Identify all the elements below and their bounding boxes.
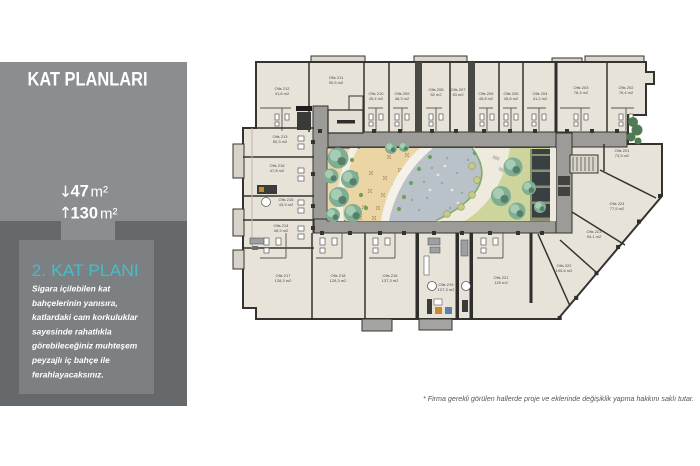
svg-text:52 m2: 52 m2 — [430, 92, 442, 97]
svg-text:m²: m² — [100, 206, 118, 223]
svg-text:76,4 m2: 76,4 m2 — [574, 90, 589, 95]
svg-text:128,3 m2: 128,3 m2 — [275, 278, 292, 283]
svg-text:45,8 m2: 45,8 m2 — [504, 96, 519, 101]
svg-text:45,9 m2: 45,9 m2 — [274, 228, 289, 233]
svg-text:77,5 m2: 77,5 m2 — [610, 206, 625, 211]
svg-text:Sigara içilebilen kat: Sigara içilebilen kat — [32, 284, 111, 294]
svg-text:43,9 m2: 43,9 m2 — [279, 202, 294, 207]
svg-text:45,8 m2: 45,8 m2 — [479, 96, 494, 101]
svg-text:47: 47 — [71, 183, 89, 201]
svg-text:45,4 m2: 45,4 m2 — [369, 96, 384, 101]
svg-text:73,9 m2: 73,9 m2 — [615, 153, 630, 158]
svg-text:47,8 m2: 47,8 m2 — [270, 168, 285, 173]
svg-text:130: 130 — [71, 205, 99, 223]
svg-text:m²: m² — [91, 184, 109, 201]
svg-text:41,8 m2: 41,8 m2 — [275, 91, 290, 96]
svg-text:KAT PLANLARI: KAT PLANLARI — [28, 70, 148, 91]
svg-text:105,6 m2: 105,6 m2 — [556, 268, 573, 273]
svg-text:2. KAT PLANI: 2. KAT PLANI — [32, 262, 139, 280]
svg-text:katlardaki cam korkuluklar: katlardaki cam korkuluklar — [32, 312, 138, 322]
svg-text:128,3 m2: 128,3 m2 — [330, 278, 347, 283]
svg-text:peyzajlı iç bahçe ile: peyzajlı iç bahçe ile — [31, 355, 110, 365]
svg-text:41,2 m2: 41,2 m2 — [533, 96, 548, 101]
svg-text:94,1 m2: 94,1 m2 — [587, 234, 602, 239]
svg-text:50,3 m2: 50,3 m2 — [273, 139, 288, 144]
svg-text:ferahlayacaksınız.: ferahlayacaksınız. — [32, 369, 104, 379]
svg-text:120 m2: 120 m2 — [494, 280, 508, 285]
svg-text:bahçelerinin yanısıra,: bahçelerinin yanısıra, — [32, 298, 118, 308]
svg-text:127,3 m2: 127,3 m2 — [438, 287, 455, 292]
svg-text:görebileceğiniz muhteşem: görebileceğiniz muhteşem — [31, 341, 138, 351]
svg-text:* Firma gerekli görülen haller: * Firma gerekli görülen hallerde proje v… — [423, 394, 694, 403]
svg-text:137,3 m2: 137,3 m2 — [382, 278, 399, 283]
svg-text:76,4 m2: 76,4 m2 — [619, 90, 634, 95]
svg-text:53 m2: 53 m2 — [452, 92, 464, 97]
svg-text:90,5 m2: 90,5 m2 — [329, 80, 344, 85]
svg-text:sayesinde rahatlıkla: sayesinde rahatlıkla — [32, 326, 112, 336]
svg-text:48,3 m2: 48,3 m2 — [395, 96, 410, 101]
